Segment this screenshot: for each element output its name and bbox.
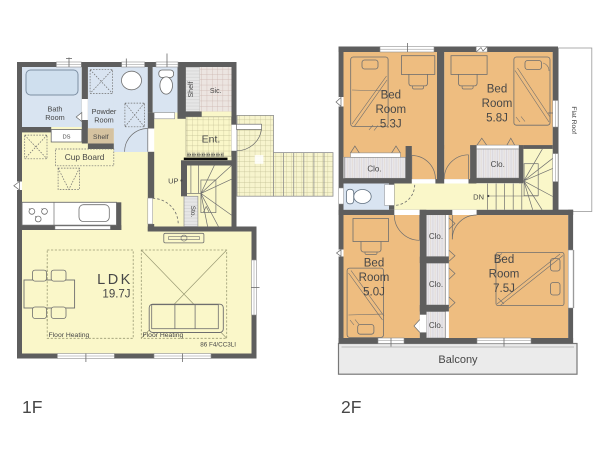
- svg-text:Ent.: Ent.: [202, 134, 221, 146]
- svg-text:Floor Heating: Floor Heating: [143, 332, 184, 339]
- svg-text:Floor Heating: Floor Heating: [49, 332, 90, 339]
- svg-text:5.0J: 5.0J: [363, 287, 385, 299]
- svg-text:DN: DN: [473, 193, 484, 202]
- svg-text:7.5J: 7.5J: [493, 283, 515, 295]
- svg-text:DS: DS: [62, 134, 70, 140]
- svg-text:Shelf: Shelf: [188, 81, 195, 97]
- svg-text:Cup Board: Cup Board: [65, 152, 105, 162]
- svg-text:Room: Room: [94, 115, 113, 124]
- svg-text:Clo.: Clo.: [429, 232, 443, 241]
- svg-text:Bed: Bed: [494, 254, 514, 266]
- svg-text:Room: Room: [45, 113, 64, 122]
- svg-text:Clo.: Clo.: [367, 164, 381, 173]
- svg-text:19.7J: 19.7J: [102, 289, 130, 301]
- svg-text:86 F4/CC3LI: 86 F4/CC3LI: [200, 342, 236, 349]
- svg-text:Room: Room: [375, 104, 406, 116]
- svg-text:Bed: Bed: [364, 258, 384, 270]
- svg-text:5.8J: 5.8J: [486, 113, 508, 125]
- svg-text:Flat Roof: Flat Roof: [570, 106, 577, 134]
- svg-text:LDK: LDK: [97, 272, 133, 288]
- svg-text:Clo.: Clo.: [429, 321, 443, 330]
- svg-text:UP: UP: [168, 177, 178, 186]
- svg-text:Room: Room: [482, 98, 513, 110]
- svg-text:5.3J: 5.3J: [380, 119, 402, 131]
- svg-text:Bed: Bed: [381, 90, 401, 102]
- svg-text:Sto.: Sto.: [189, 206, 196, 218]
- svg-text:Balcony: Balcony: [438, 354, 478, 366]
- svg-text:Bed: Bed: [487, 84, 507, 96]
- svg-text:Shelf: Shelf: [93, 134, 109, 141]
- svg-text:Clo.: Clo.: [429, 280, 443, 289]
- svg-text:Room: Room: [359, 272, 390, 284]
- svg-text:Clo.: Clo.: [491, 160, 505, 169]
- svg-text:2F: 2F: [341, 397, 361, 417]
- svg-text:1F: 1F: [22, 397, 42, 417]
- svg-text:Room: Room: [489, 269, 520, 281]
- svg-text:Sic.: Sic.: [210, 88, 222, 95]
